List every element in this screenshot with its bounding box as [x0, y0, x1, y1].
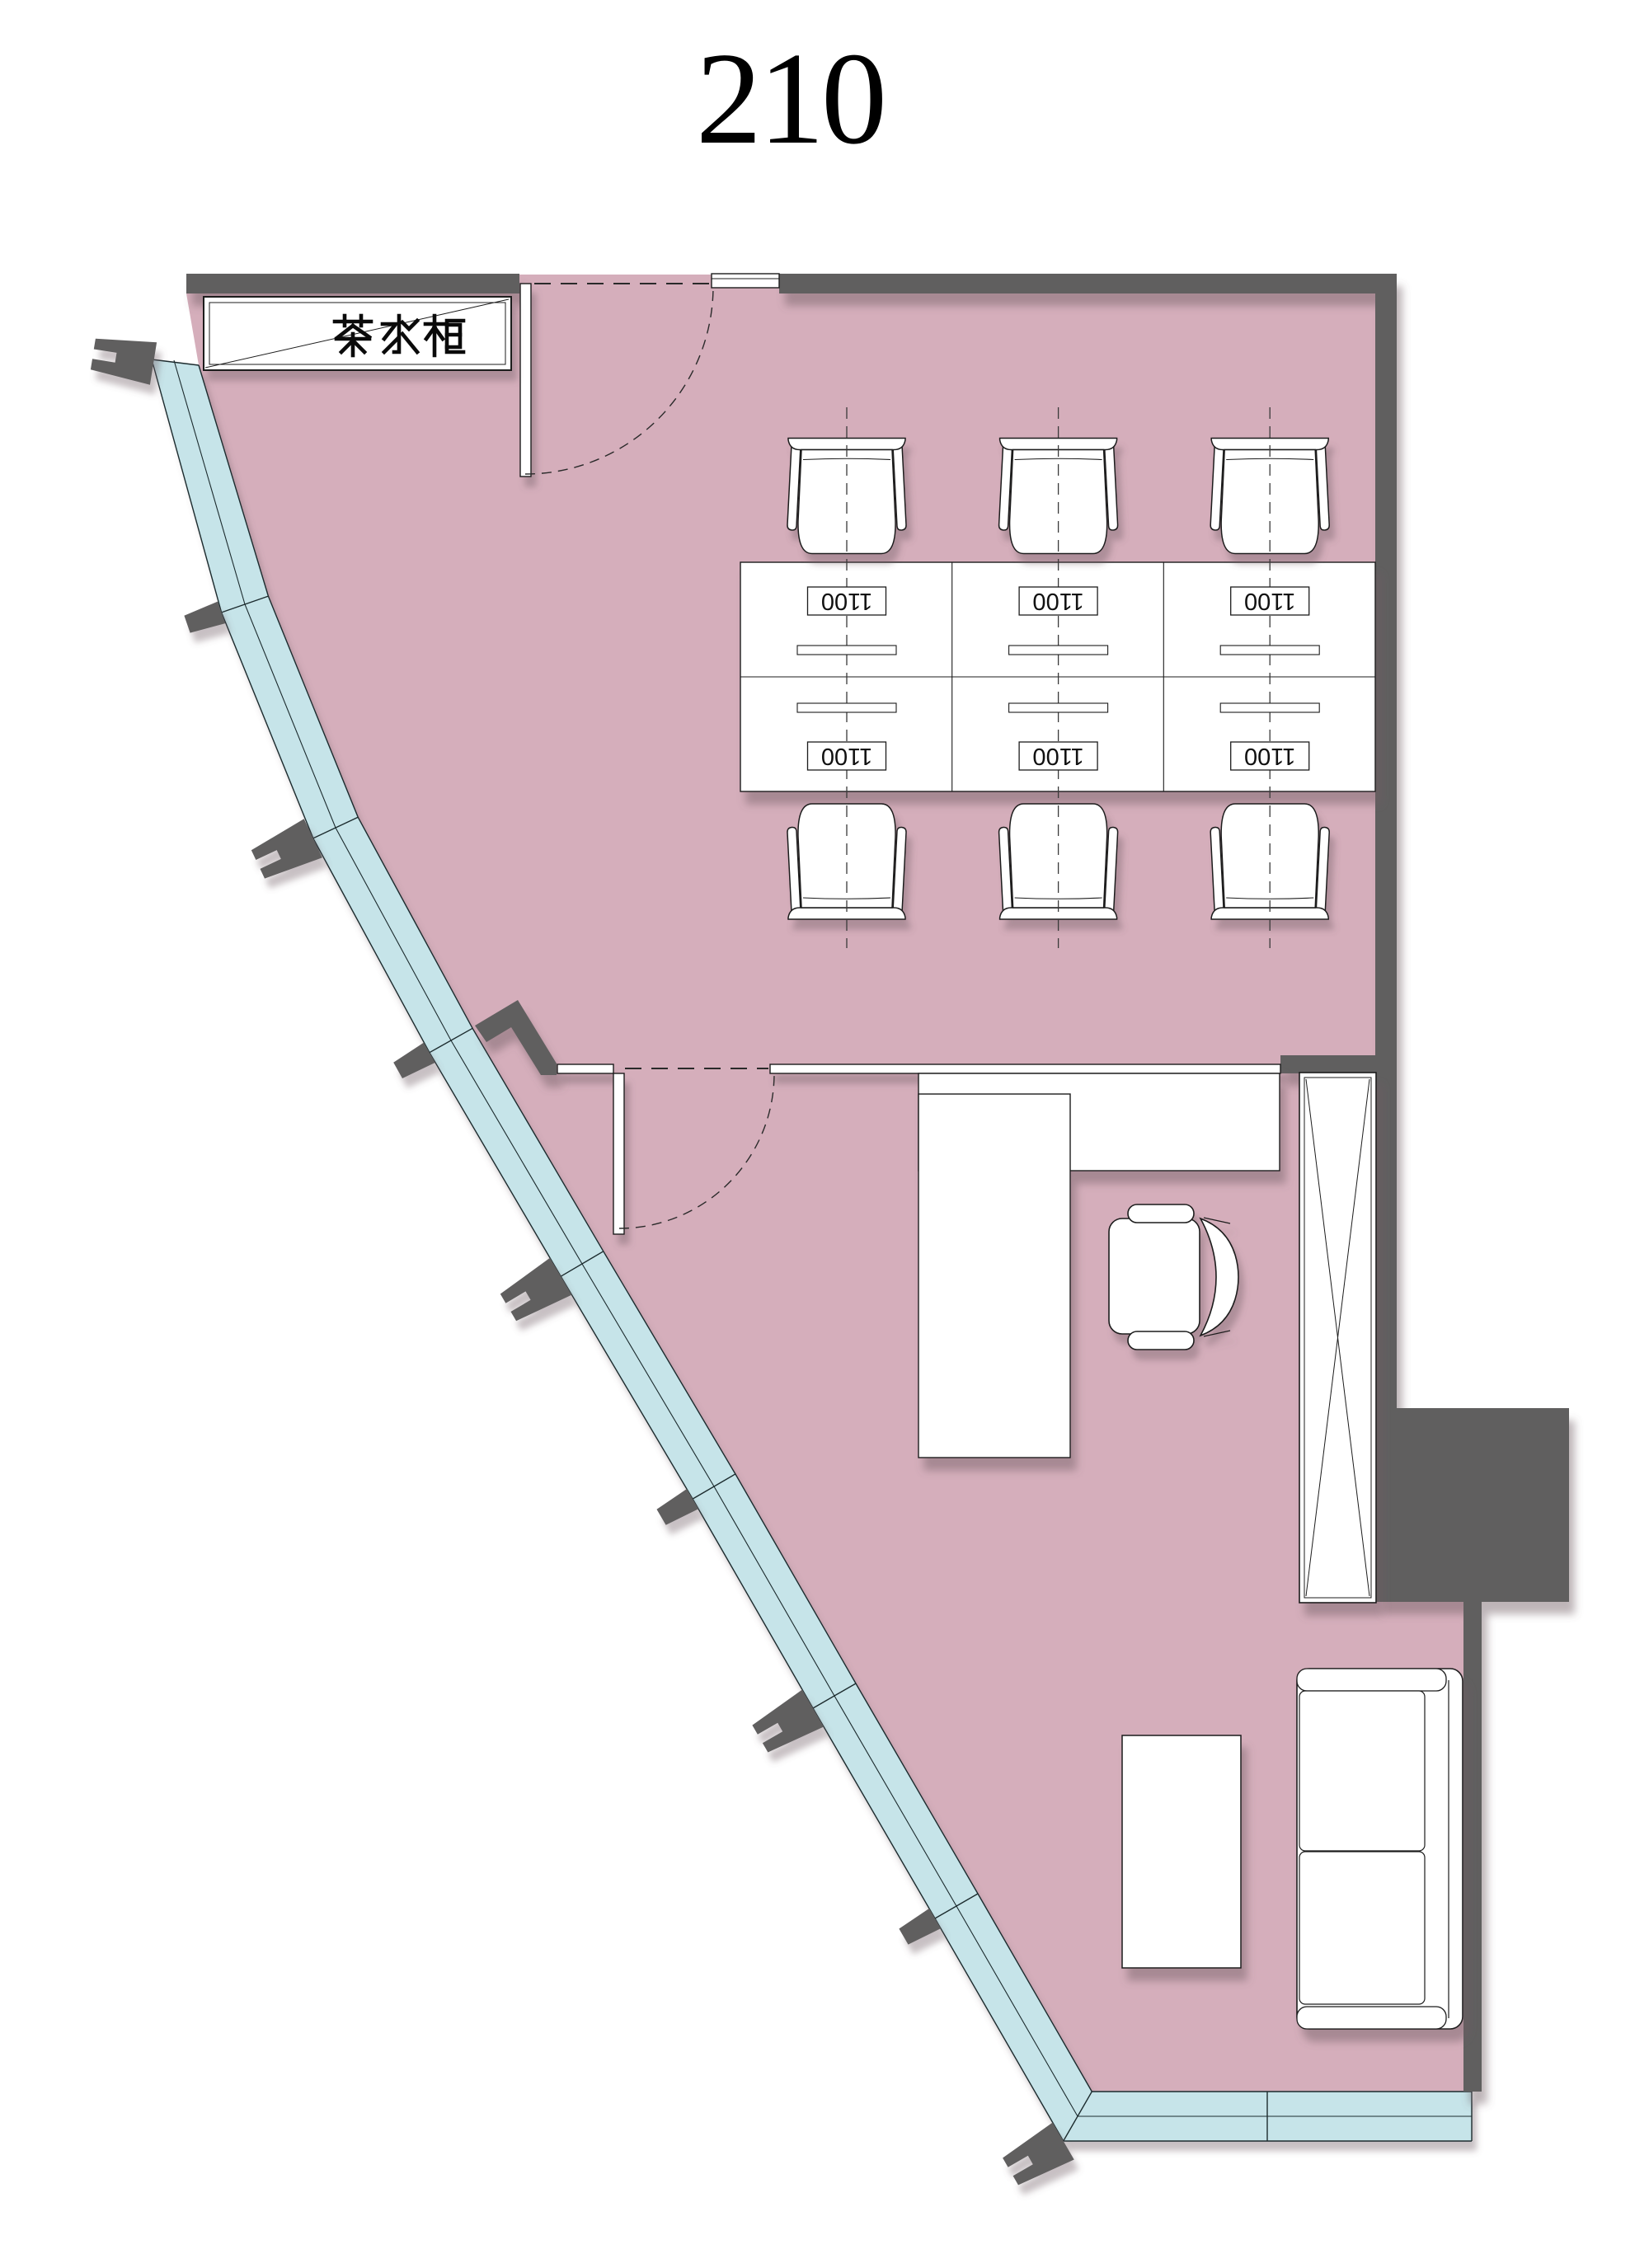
svg-text:1100: 1100 — [821, 588, 872, 614]
svg-text:1100: 1100 — [1244, 588, 1295, 614]
svg-text:210: 210 — [696, 25, 884, 171]
svg-text:1100: 1100 — [821, 743, 872, 769]
svg-text:1100: 1100 — [1244, 743, 1295, 769]
svg-text:1100: 1100 — [1032, 743, 1083, 769]
svg-text:1100: 1100 — [1032, 588, 1083, 614]
